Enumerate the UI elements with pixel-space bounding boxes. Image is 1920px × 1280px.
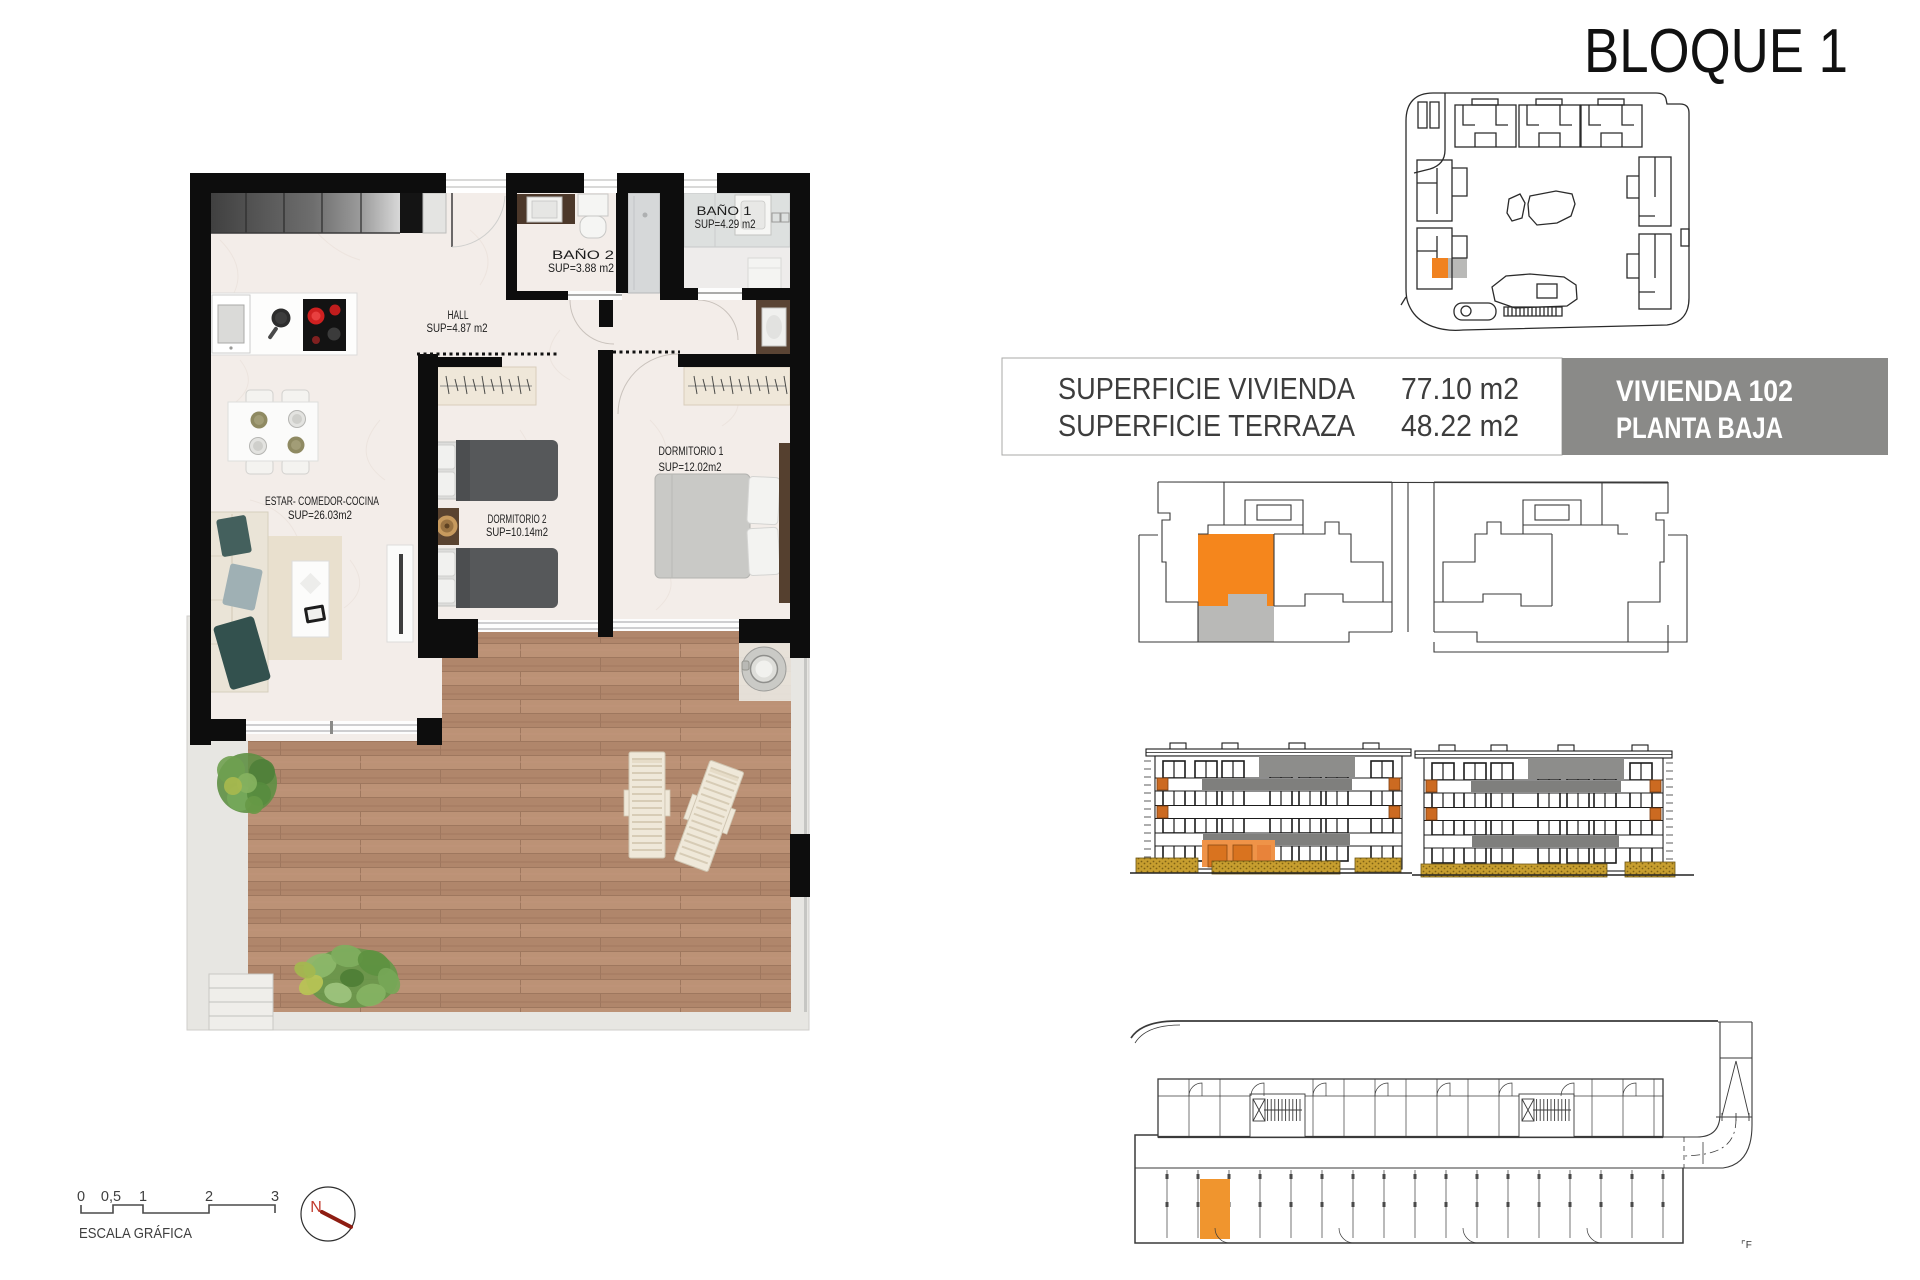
svg-text:SUP=4.87 m2: SUP=4.87 m2 — [427, 323, 488, 335]
svg-text:77.10 m2: 77.10 m2 — [1401, 371, 1519, 406]
svg-text:BAÑO 2: BAÑO 2 — [552, 249, 614, 262]
svg-text:DORMITORIO 2: DORMITORIO 2 — [488, 514, 547, 526]
svg-text:SUP=12.02m2: SUP=12.02m2 — [659, 462, 722, 474]
svg-text:PLANTA BAJA: PLANTA BAJA — [1616, 412, 1783, 445]
svg-text:3: 3 — [271, 1189, 279, 1205]
svg-text:0: 0 — [77, 1189, 85, 1205]
svg-text:SUPERFICIE TERRAZA: SUPERFICIE TERRAZA — [1058, 408, 1355, 443]
svg-text:ESTAR- COMEDOR-COCINA: ESTAR- COMEDOR-COCINA — [265, 496, 379, 508]
svg-text:BLOQUE 1: BLOQUE 1 — [1584, 17, 1848, 86]
svg-text:SUP=26.03m2: SUP=26.03m2 — [288, 510, 352, 522]
svg-text:SUPERFICIE VIVIENDA: SUPERFICIE VIVIENDA — [1058, 371, 1355, 406]
svg-text:⌜F: ⌜F — [1741, 1240, 1752, 1251]
svg-text:2: 2 — [205, 1189, 213, 1205]
svg-text:ESCALA GRÁFICA: ESCALA GRÁFICA — [79, 1225, 192, 1242]
svg-text:VIVIENDA 102: VIVIENDA 102 — [1616, 375, 1793, 408]
svg-text:SUP=3.88 m2: SUP=3.88 m2 — [548, 263, 614, 275]
svg-text:0,5: 0,5 — [101, 1189, 121, 1205]
svg-text:DORMITORIO 1: DORMITORIO 1 — [659, 446, 724, 458]
svg-text:SUP=10.14m2: SUP=10.14m2 — [486, 527, 548, 539]
svg-text:SUP=4.29 m2: SUP=4.29 m2 — [695, 219, 756, 231]
svg-text:N: N — [310, 1199, 322, 1216]
svg-text:1: 1 — [139, 1189, 147, 1205]
svg-text:BAÑO 1: BAÑO 1 — [697, 205, 752, 218]
svg-text:48.22 m2: 48.22 m2 — [1401, 408, 1519, 443]
svg-text:HALL: HALL — [448, 310, 469, 322]
